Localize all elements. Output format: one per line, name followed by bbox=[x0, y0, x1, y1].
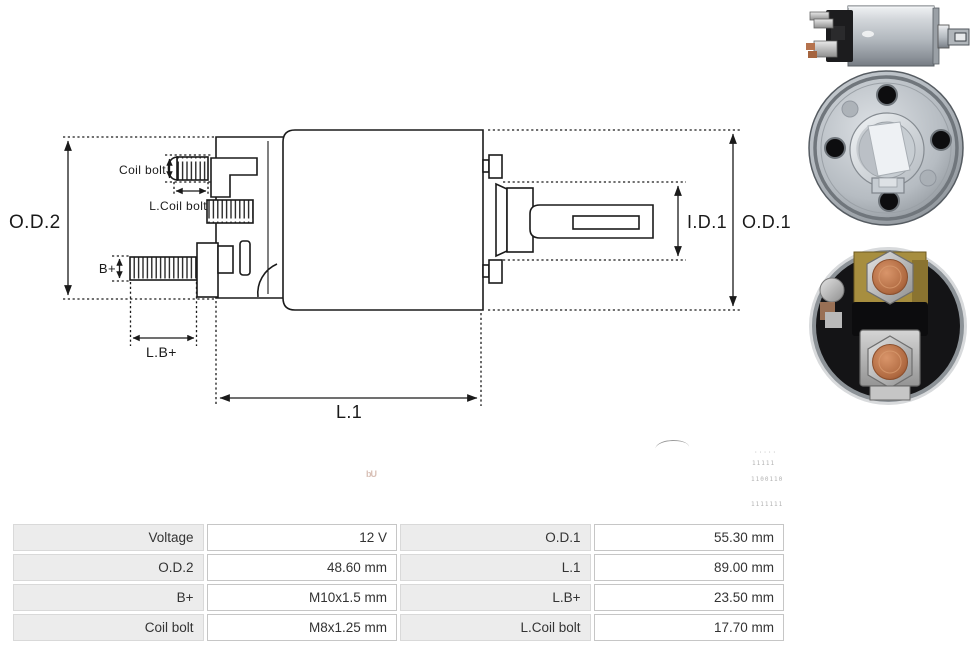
rivet-dimple bbox=[920, 170, 936, 186]
dim-label-l1: L.1 bbox=[336, 402, 362, 422]
dim-label-l-b-plus: L.B+ bbox=[146, 344, 177, 360]
spec-label: L.Coil bolt bbox=[400, 614, 591, 641]
spec-label: O.D.2 bbox=[13, 554, 204, 581]
watermark-fragment: 1111111 bbox=[751, 502, 783, 508]
spec-value: 89.00 mm bbox=[594, 554, 785, 581]
spec-label: Coil bolt bbox=[13, 614, 204, 641]
solenoid-body bbox=[283, 130, 483, 310]
bracket-foot bbox=[870, 386, 910, 400]
plunger-shaft bbox=[496, 184, 653, 256]
dim-label-od2: O.D.2 bbox=[9, 212, 61, 233]
small-screw bbox=[820, 278, 844, 302]
top-terminal-copper bbox=[873, 260, 908, 295]
watermark-fragment: 1100110 bbox=[751, 477, 783, 483]
spec-value: M8x1.25 mm bbox=[207, 614, 398, 641]
spec-row: O.D.2 48.60 mm L.1 89.00 mm bbox=[13, 554, 784, 581]
cylinder-housing bbox=[848, 6, 934, 66]
spec-row: Coil bolt M8x1.25 mm L.Coil bolt 17.70 m… bbox=[13, 614, 784, 641]
product-photo-side-view bbox=[806, 4, 970, 68]
spec-label: L.1 bbox=[400, 554, 591, 581]
bolt-hole-top bbox=[877, 85, 897, 105]
watermark-curve bbox=[655, 439, 690, 450]
watermark-fragment: 11111 bbox=[752, 461, 775, 467]
coil-bolt-thread-block bbox=[207, 200, 253, 223]
shaft-boss bbox=[938, 25, 949, 48]
bolt-hole-bottom bbox=[879, 191, 899, 211]
bolt-hole-right bbox=[931, 130, 951, 150]
spec-label: O.D.1 bbox=[400, 524, 591, 551]
bottom-terminal-copper bbox=[873, 345, 908, 380]
spec-label: B+ bbox=[13, 584, 204, 611]
watermark-smudge: bU bbox=[366, 469, 376, 479]
bottom-nut bbox=[814, 41, 837, 57]
dim-label-b-plus: B+ bbox=[99, 261, 116, 276]
dim-label-l-coil-bolt: L.Coil bolt bbox=[149, 199, 207, 213]
dim-label-id1: I.D.1 bbox=[687, 212, 727, 232]
product-spec-sheet: O.D.2 O.D.1 I.D.1 L.1 L.B+ B+ Coil bolt … bbox=[0, 0, 976, 647]
spec-value: 17.70 mm bbox=[594, 614, 785, 641]
spec-row: Voltage 12 V O.D.1 55.30 mm bbox=[13, 524, 784, 551]
product-photo-rear-terminals bbox=[806, 244, 970, 428]
spec-label: L.B+ bbox=[400, 584, 591, 611]
spec-value: 55.30 mm bbox=[594, 524, 785, 551]
bolt-hole-left bbox=[825, 138, 845, 158]
shaft-slot bbox=[573, 216, 639, 229]
product-photo-front-face bbox=[798, 70, 976, 230]
spec-value: 12 V bbox=[207, 524, 398, 551]
spec-value: M10x1.5 mm bbox=[207, 584, 398, 611]
technical-drawing: O.D.2 O.D.1 I.D.1 L.1 L.B+ B+ Coil bolt … bbox=[0, 100, 790, 430]
dim-label-coil-bolt: Coil bolt bbox=[119, 163, 166, 177]
spec-row: B+ M10x1.5 mm L.B+ 23.50 mm bbox=[13, 584, 784, 611]
copper-lead bbox=[806, 43, 815, 50]
watermark-fragment: ····· bbox=[754, 450, 777, 456]
spec-label: Voltage bbox=[13, 524, 204, 551]
dim-label-od1: O.D.1 bbox=[742, 212, 790, 232]
spec-table: Voltage 12 V O.D.1 55.30 mm O.D.2 48.60 … bbox=[10, 521, 787, 644]
rivet-dimple bbox=[842, 101, 858, 117]
spec-value: 23.50 mm bbox=[594, 584, 785, 611]
spec-value: 48.60 mm bbox=[207, 554, 398, 581]
tab-hole bbox=[955, 33, 966, 41]
